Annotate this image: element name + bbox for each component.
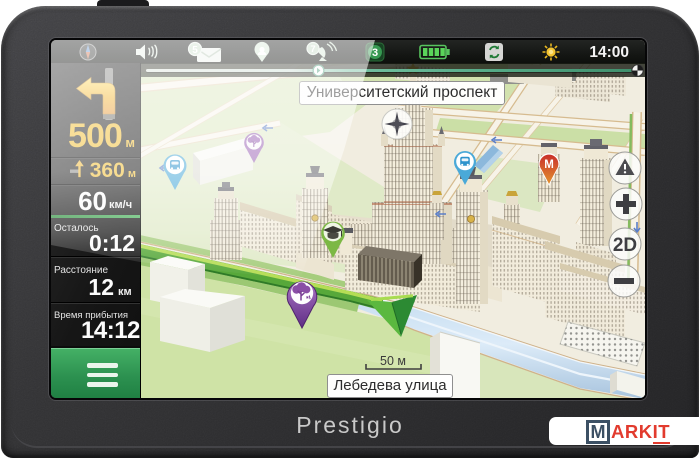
- svg-text:50 м: 50 м: [380, 354, 406, 368]
- svg-text:3: 3: [372, 47, 378, 59]
- svg-text:14:00: 14:00: [589, 44, 629, 61]
- svg-text:2D: 2D: [613, 235, 637, 256]
- svg-text:М: М: [544, 159, 554, 171]
